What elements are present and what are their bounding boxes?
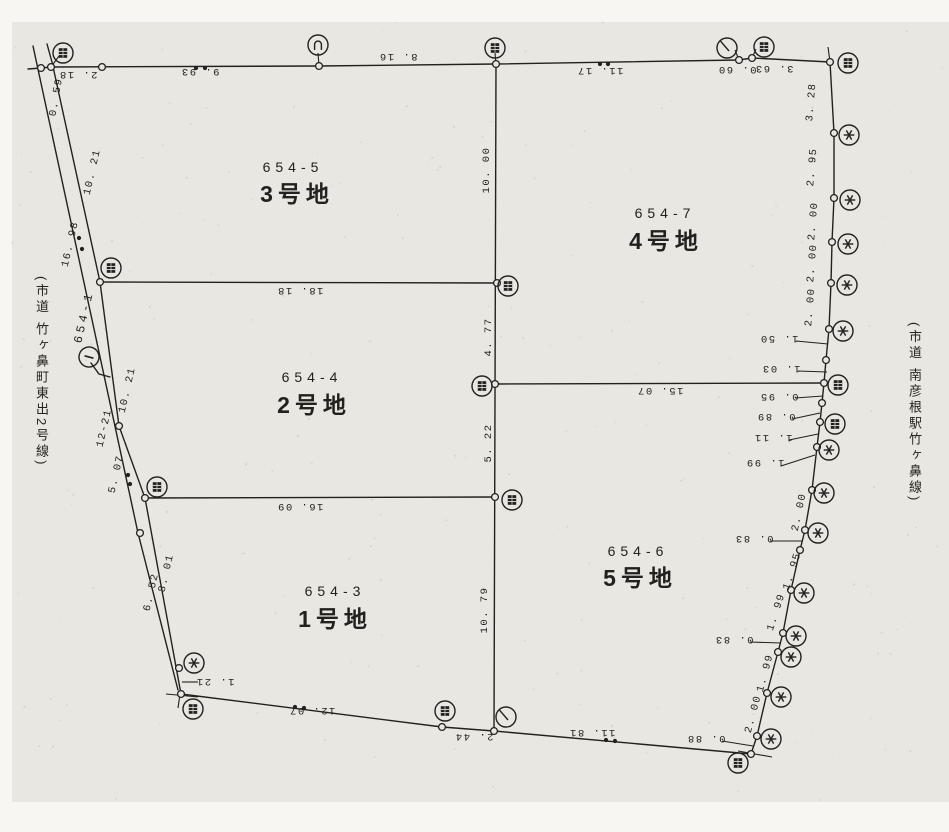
boundary-point-marker	[831, 130, 838, 137]
dimension-label: 0. 83	[714, 633, 753, 645]
boundary-point-marker	[831, 195, 838, 202]
cadastral-survey-drawing: 2. 189. 938. 1611. 170. 603. 630. 5910. …	[0, 0, 949, 832]
boundary-point-marker	[137, 530, 144, 537]
midpoint-dot	[613, 739, 617, 743]
parcel-name: 2号地	[277, 392, 351, 418]
boundary-point-marker	[142, 495, 149, 502]
boundary-point-marker	[736, 57, 743, 64]
boundary-point-marker	[493, 61, 500, 68]
parcel-name: 3号地	[260, 181, 334, 207]
boundary-point-marker	[821, 380, 828, 387]
boundary-point-marker	[749, 55, 756, 62]
dimension-label: 1. 03	[761, 362, 800, 374]
dimension-label: 2. 18	[58, 68, 97, 80]
boundary-point-marker	[99, 64, 106, 71]
boundary-point-marker	[748, 751, 755, 758]
boundary-point-marker	[178, 691, 185, 698]
dimension-label: 18. 18	[277, 284, 324, 296]
dimension-label: 4. 77	[483, 317, 495, 356]
parcel-name: 5号地	[603, 565, 677, 591]
boundary-point-marker	[97, 279, 104, 286]
dimension-label: 15. 07	[637, 384, 684, 396]
scanned-survey-page: { "page": { "paper_color": "#e9e7e1", "m…	[0, 0, 949, 832]
boundary-point-marker	[439, 724, 446, 731]
boundary-point-marker	[827, 59, 834, 66]
dimension-label: 0. 88	[686, 732, 725, 744]
dimension-label: 11. 17	[577, 64, 624, 76]
boundary-point-marker	[116, 423, 123, 430]
midpoint-dot	[128, 482, 132, 486]
boundary-point-marker	[826, 326, 833, 333]
dimension-label: 10. 79	[479, 587, 491, 634]
road-name-left: (市道 竹ヶ鼻町東出2号線)	[32, 276, 51, 468]
dimension-label: 0. 60	[717, 63, 756, 75]
boundary-point-marker	[828, 280, 835, 287]
boundary-point-marker	[829, 239, 836, 246]
boundary-point-marker	[38, 65, 45, 72]
dimension-label: 12. 07	[289, 704, 336, 716]
boundary-point-marker	[775, 649, 782, 656]
dimension-label: 5. 22	[483, 423, 495, 462]
boundary-point-marker	[823, 357, 830, 364]
dimension-label: 0. 95	[759, 390, 798, 402]
boundary-point-marker	[316, 63, 323, 70]
midpoint-dot	[80, 247, 84, 251]
dimension-label: 11. 81	[569, 726, 616, 738]
dimension-label: 8. 16	[378, 50, 417, 62]
boundary-point-marker	[817, 419, 824, 426]
dimension-label: 1. 11	[753, 431, 792, 443]
boundary-point-marker	[48, 64, 55, 71]
dimension-label: 10. 00	[481, 147, 493, 194]
dimension-label: 0. 83	[734, 532, 773, 544]
paper-background	[12, 22, 949, 802]
boundary-point-marker	[819, 400, 826, 407]
boundary-point-marker	[492, 494, 499, 501]
dimension-label: 1. 21	[195, 675, 234, 687]
dimension-label: 1. 99	[745, 456, 784, 468]
boundary-point-marker	[176, 665, 183, 672]
parcel-lot-number: 654-5	[263, 159, 324, 175]
parcel-name: 1号地	[298, 606, 372, 632]
dimension-label: 2. 44	[454, 730, 493, 742]
dimension-label: 0. 89	[756, 410, 795, 422]
parcel-lot-number: 654-7	[635, 205, 696, 221]
parcel-name: 4号地	[629, 228, 703, 254]
parcel-lot-number: 654-4	[282, 369, 343, 385]
parcel-lot-number: 654-3	[305, 583, 366, 599]
road-name-right: (市道 南彦根駅竹ヶ鼻線)	[905, 322, 924, 503]
parcel-lot-number: 654-6	[608, 543, 669, 559]
dimension-label: 16. 09	[277, 500, 324, 512]
line-divider-18-18	[100, 282, 497, 283]
dimension-label: 3. 63	[754, 62, 793, 74]
line-divider-16-09	[145, 497, 495, 498]
dimension-label: 1. 50	[759, 332, 798, 344]
midpoint-dot	[126, 473, 130, 477]
dimension-label: 9. 93	[180, 65, 219, 77]
